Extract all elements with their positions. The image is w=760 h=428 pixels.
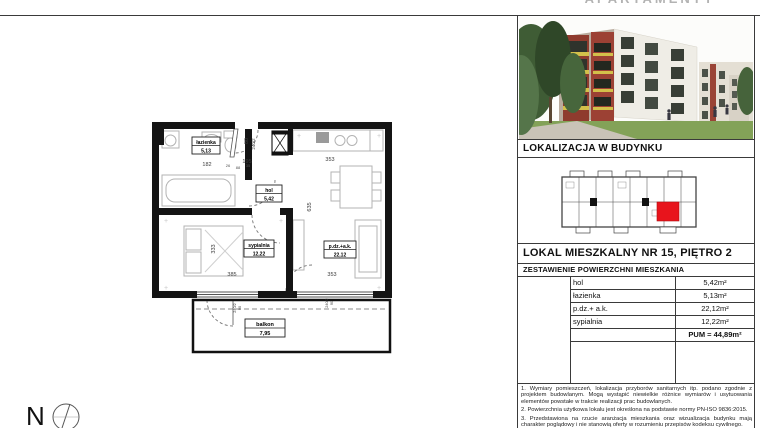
north-label: N: [26, 401, 45, 428]
dim-door: 26: [226, 163, 231, 168]
stair-core: [642, 198, 649, 206]
dim-window-sill: 90: [330, 301, 334, 305]
balcony: [193, 300, 390, 352]
stove-burner: [335, 136, 345, 146]
dimensions: 182 26 88 35 195 353 80 240/2 333 635 38…: [202, 138, 336, 313]
kitchen-sink: [316, 132, 329, 143]
panel-right-border: [754, 15, 755, 428]
dim-living-height: 635: [307, 202, 313, 211]
table-row-value: 5,42m²: [676, 276, 754, 289]
svg-text:balkon: balkon: [256, 322, 274, 328]
building-photo: [519, 17, 753, 139]
chair: [331, 172, 340, 183]
table-col-rule: [570, 276, 571, 383]
dim-living-top: 353: [325, 157, 334, 163]
svg-text:+: +: [279, 218, 283, 225]
pum-total: PUM = 44,89m²: [676, 328, 754, 341]
notes-top-rule: [517, 383, 755, 384]
footnotes: 1. Wymiary pomieszczeń, lokalizacja przy…: [521, 386, 752, 428]
shaft: [272, 131, 288, 155]
area-table-header: ZESTAWIENIE POWIERZCHNI MIESZKANIA: [523, 263, 751, 276]
unit-balcony: [660, 227, 676, 233]
bedroom-balcony-door-swing: [207, 300, 233, 326]
drawing-sheet: APARTAMENTY: [0, 0, 760, 428]
room-label-balkon: balkon 7,95: [245, 319, 285, 337]
svg-text:+: +: [164, 285, 168, 292]
highlighted-unit: [657, 202, 679, 221]
chair: [331, 190, 340, 201]
table-row-value: 22,12m²: [676, 302, 754, 315]
table-row-label: p.dz.+ a.k.: [573, 302, 671, 315]
svg-text:+: +: [297, 133, 301, 140]
room-labels: łazienka 5,13 hol 5,42 sypialnia 12,22 p…: [192, 137, 356, 337]
bedroom-door-swing: [252, 215, 280, 243]
room-label-hol: hol 5,42: [256, 185, 282, 203]
washing-machine: [162, 131, 179, 148]
north-compass: N: [26, 401, 79, 428]
dim-door: 88: [236, 165, 241, 170]
location-header: LOKALIZACJA W BUDYNKU: [523, 140, 751, 157]
key-plan: [518, 158, 754, 243]
svg-text:5,42: 5,42: [264, 197, 274, 203]
dining-table: [340, 166, 372, 208]
stair-core: [590, 198, 597, 206]
dim-bedroom-width: 385: [227, 272, 236, 278]
svg-text:5,13: 5,13: [201, 149, 211, 155]
table-row-label: hol: [573, 276, 671, 289]
dim-window-frame: 240/2: [233, 303, 237, 313]
svg-text:22,12: 22,12: [334, 253, 347, 259]
svg-text:łazienka: łazienka: [196, 140, 216, 146]
table-bottom-rule: [570, 341, 755, 342]
dim-hall-top: 195: [242, 159, 251, 165]
dim-entry-frame: 240/2: [251, 138, 256, 150]
table-row-label: sypialnia: [573, 315, 671, 328]
dim-bath-top: 182: [202, 162, 211, 168]
unit-title: LOKAL MIESZKALNY NR 15, PIĘTRO 2: [523, 243, 751, 263]
north-arrow-icon: [62, 404, 70, 428]
table-row-value: 5,13m²: [676, 289, 754, 302]
room-label-sypialnia: sypialnia 12,22: [244, 240, 274, 258]
note: 2. Powierzchnia użytkowa lokalu jest okr…: [521, 407, 752, 413]
chair: [372, 190, 381, 201]
svg-text:sypialnia: sypialnia: [248, 243, 270, 249]
svg-text:p.dz.+a.k.: p.dz.+a.k.: [329, 244, 352, 250]
chair: [372, 172, 381, 183]
svg-text:7,95: 7,95: [260, 331, 271, 337]
svg-text:+: +: [164, 218, 168, 225]
dim-entry-width: 80: [244, 138, 250, 144]
room-label-pokoj-dzienny: p.dz.+a.k. 22,12: [324, 241, 356, 259]
floor-plan: +++ +++: [0, 0, 517, 428]
svg-text:12,22: 12,22: [253, 252, 266, 258]
room-label-lazienka: łazienka 5,13: [192, 137, 220, 155]
svg-text:hol: hol: [265, 188, 273, 194]
svg-text:+: +: [377, 285, 381, 292]
dim-window-frame: 240/2: [325, 298, 329, 308]
stove-burner: [347, 136, 357, 146]
note: 1. Wymiary pomieszczeń, lokalizacja przy…: [521, 386, 752, 405]
svg-text:+: +: [377, 133, 381, 140]
dim-bedroom-height: 333: [211, 244, 217, 253]
table-row-value: 12,22m²: [676, 315, 754, 328]
note: 3. Przedstawiona na rzucie aranżacja mie…: [521, 416, 752, 428]
cabinet: [293, 220, 304, 270]
table-row-label: łazienka: [573, 289, 671, 302]
dim-window-sill: 90: [238, 306, 242, 310]
dim-living-width: 353: [327, 272, 336, 278]
developer-logo: APARTAMENTY: [540, 0, 760, 6]
